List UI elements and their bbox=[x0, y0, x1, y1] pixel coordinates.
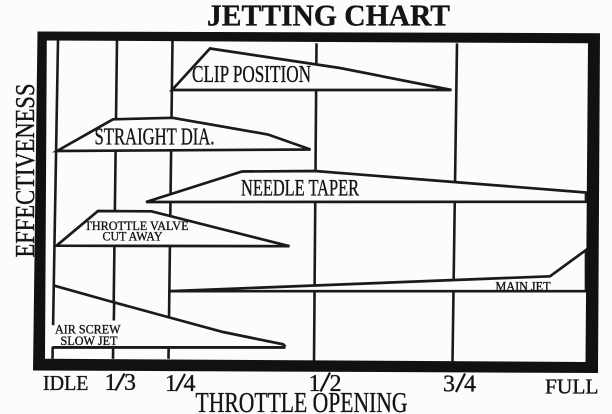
svg-text:1: 1 bbox=[105, 370, 117, 396]
svg-text:FULL: FULL bbox=[545, 375, 599, 399]
svg-text:CLIP POSITION: CLIP POSITION bbox=[192, 61, 311, 88]
svg-text:STRAIGHT DIA.: STRAIGHT DIA. bbox=[95, 123, 215, 150]
svg-text:4: 4 bbox=[184, 371, 196, 397]
svg-text:IDLE: IDLE bbox=[43, 371, 89, 395]
svg-text:CUT AWAY: CUT AWAY bbox=[103, 229, 164, 244]
svg-text:4: 4 bbox=[464, 372, 476, 398]
svg-text:THROTTLE OPENING: THROTTLE OPENING bbox=[196, 388, 408, 414]
svg-text:1: 1 bbox=[165, 371, 177, 397]
svg-text:JETTING CHART: JETTING CHART bbox=[207, 0, 450, 33]
svg-text:3: 3 bbox=[443, 372, 455, 398]
svg-text:3: 3 bbox=[124, 370, 136, 396]
svg-text:MAIN JET: MAIN JET bbox=[496, 280, 551, 294]
svg-text:NEEDLE TAPER: NEEDLE TAPER bbox=[241, 176, 359, 201]
svg-text:SLOW JET: SLOW JET bbox=[61, 333, 118, 348]
svg-text:EFFECTIVENESS: EFFECTIVENESS bbox=[10, 84, 40, 258]
